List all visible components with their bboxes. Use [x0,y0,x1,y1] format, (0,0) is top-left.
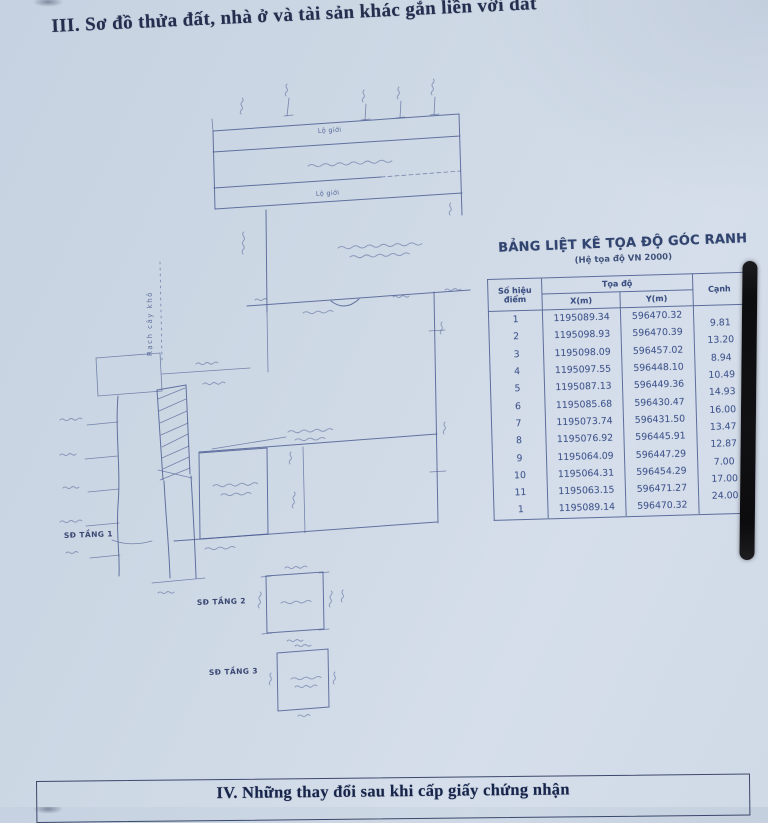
scanned-certificate-page: III. Sơ đồ thửa đất, nhà ở và tài sản kh… [0,0,768,807]
cell-x: 1195089.34 [542,308,620,328]
cell-x: 1195073.74 [545,412,623,431]
road-setback-label-bottom: Lộ giới [316,189,340,198]
table-body: 11195089.34596470.329.8121195098.9359647… [488,304,752,520]
cell-x: 1195098.09 [543,343,621,362]
cell-point: 5 [490,380,544,399]
cell-x: 1195087.13 [544,377,622,396]
canal [60,262,250,594]
cell-point: 3 [489,345,543,364]
cell-x: 1195098.93 [543,326,621,345]
canal-label: Rạch cây khô [146,291,154,356]
cell-y: 596447.29 [624,445,697,464]
cell-point: 4 [490,362,544,381]
cell-y: 596448.10 [622,358,695,377]
floor-plans [112,540,344,717]
cell-x: 1195089.14 [548,498,626,518]
cell-x: 1195097.55 [544,360,622,379]
lower-parcel [174,382,437,550]
section-iv-title: IV. Những thay đổi sau khi cấp giấy chứn… [37,778,749,805]
binding-bar-shadow [739,261,757,560]
cell-x: 1195064.09 [546,447,624,466]
section-iii-title: III. Sơ đồ thửa đất, nhà ở và tài sản kh… [51,0,537,38]
floor-plan-2-label: SĐ TẦNG 2 [197,595,246,607]
cell-y: 596457.02 [621,341,694,360]
coordinate-table-header: BẢNG LIỆT KÊ TỌA ĐỘ GÓC RANH (Hệ tọa độ … [497,231,750,269]
cell-edge: 9.81 [693,304,746,323]
cell-point: 8 [492,431,546,450]
cell-point: 1 [488,310,542,329]
floor-plan-1-label: SĐ TẦNG 1 [64,528,113,540]
cell-x: 1195085.68 [545,395,623,414]
section-iv-box: IV. Những thay đổi sau khi cấp giấy chứn… [36,774,750,823]
cell-y: 596470.32 [626,496,699,516]
cell-y: 596431.50 [623,410,696,429]
cell-y: 596445.91 [624,427,697,446]
col-header-point: Số hiệu điểm [488,278,543,311]
cell-point: 2 [489,328,543,347]
road-band [212,79,462,215]
cell-point: 9 [492,449,546,468]
cell-y: 596471.27 [625,479,698,498]
cell-x: 1195076.92 [546,429,624,448]
cell-point: 6 [491,397,545,416]
col-header-edge: Cạnh [692,272,746,305]
cell-point: 11 [493,483,547,502]
cell-x: 1195063.15 [547,481,625,500]
cell-y: 596430.47 [623,393,696,412]
cell-y: 596449.36 [622,375,695,394]
cell-point: 7 [491,414,545,433]
cell-x: 1195064.31 [547,464,625,483]
coordinate-table: Số hiệu điểm Tọa độ Cạnh X(m) Y(m) 11195… [487,272,753,521]
upper-parcel [242,210,470,523]
cell-y: 596470.32 [620,306,693,326]
cell-point: 1 [494,501,548,520]
cell-y: 596454.29 [625,462,698,481]
floor-plan-3-label: SĐ TẦNG 3 [209,665,258,677]
cell-point: 10 [493,466,547,485]
road-setback-label-top: Lộ giới [318,126,342,135]
cell-y: 596470.39 [621,324,694,343]
